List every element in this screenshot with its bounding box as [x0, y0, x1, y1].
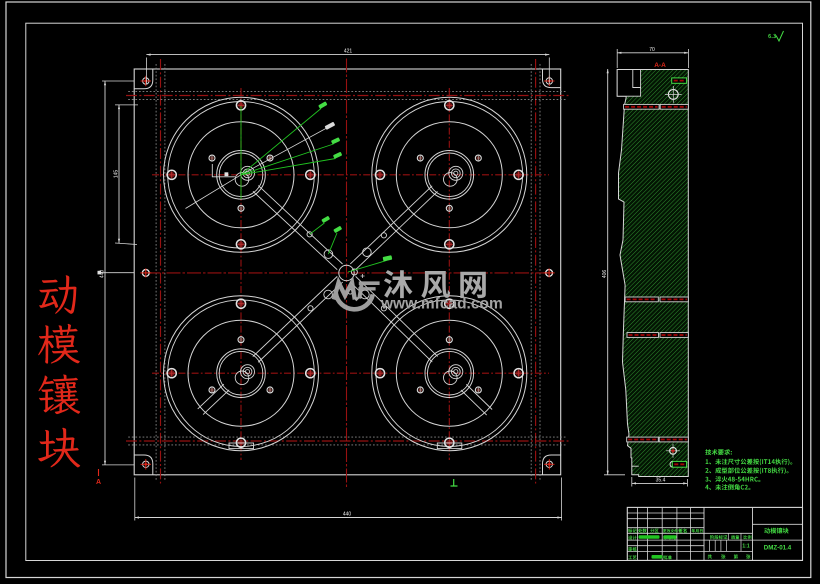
- svg-text:www.mfcad.com: www.mfcad.com: [380, 296, 503, 313]
- svg-text:145: 145: [114, 170, 120, 179]
- svg-text:406: 406: [602, 270, 608, 279]
- svg-text:70: 70: [649, 47, 655, 53]
- svg-text:35.4: 35.4: [656, 478, 666, 484]
- svg-text:A: A: [96, 479, 101, 486]
- svg-text:DMZ-01.4: DMZ-01.4: [764, 545, 792, 552]
- svg-text:A-A: A-A: [654, 62, 666, 69]
- svg-text:440: 440: [343, 512, 352, 518]
- svg-text:1:1: 1:1: [742, 544, 749, 550]
- svg-text:421: 421: [344, 49, 353, 55]
